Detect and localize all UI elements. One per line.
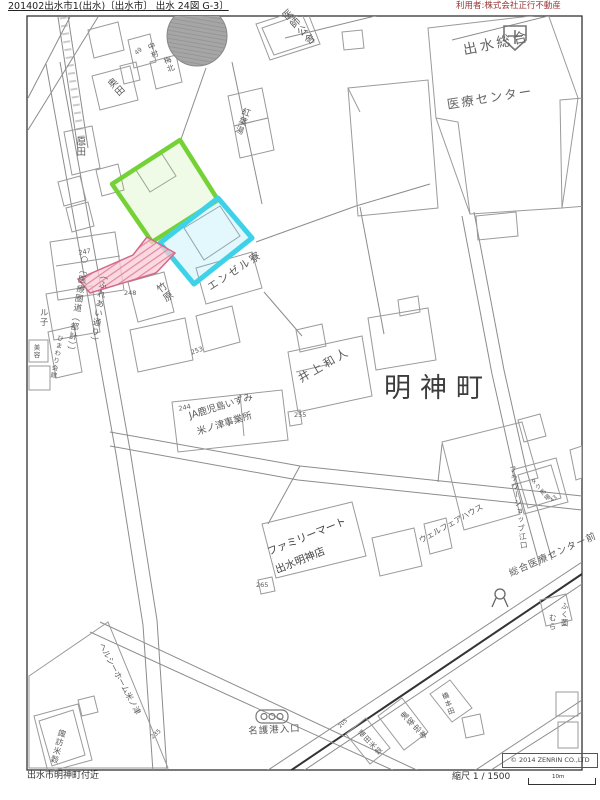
roads bbox=[28, 5, 582, 800]
label-harada: 原田 bbox=[74, 136, 84, 157]
scale-bar: 10m bbox=[528, 778, 596, 785]
zenrin-map-page: 201402出水市1(出水)〔出水市〕 出水 24図 G-3〕 利用者:株式会社… bbox=[0, 0, 600, 800]
gray-tank-circle bbox=[167, 6, 227, 66]
scale-bar-unit: 10m bbox=[551, 774, 565, 780]
map-sheet-title: 201402出水市1(出水)〔出水市〕 出水 24図 G-3〕 bbox=[8, 2, 229, 12]
label-myojincho-district: 明神町 bbox=[384, 374, 492, 403]
bathhouse-building bbox=[228, 88, 268, 126]
label-parcel-255: 255 bbox=[294, 412, 306, 419]
label-ruko: ル子 bbox=[38, 308, 47, 327]
footer-scale-text: 縮尺 1 / 1500 bbox=[452, 773, 510, 783]
label-fukuzono: ふく薗 bbox=[560, 602, 568, 628]
map-canvas bbox=[0, 0, 600, 800]
bus-stop-icon bbox=[492, 589, 508, 607]
copyright-box: © 2014 ZENRIN CO.,LTD bbox=[502, 753, 598, 768]
label-mura: むら bbox=[548, 614, 556, 631]
traffic-signal-icon bbox=[256, 710, 288, 723]
label-biyo: 美容 bbox=[32, 344, 39, 359]
map-user-note: 利用者:株式会社正行不動産 bbox=[456, 2, 561, 11]
footer-area-name: 出水市明神町付近 bbox=[27, 772, 99, 782]
label-parcel-265: 265 bbox=[256, 582, 268, 589]
label-parcel-248: 248 bbox=[124, 290, 136, 297]
